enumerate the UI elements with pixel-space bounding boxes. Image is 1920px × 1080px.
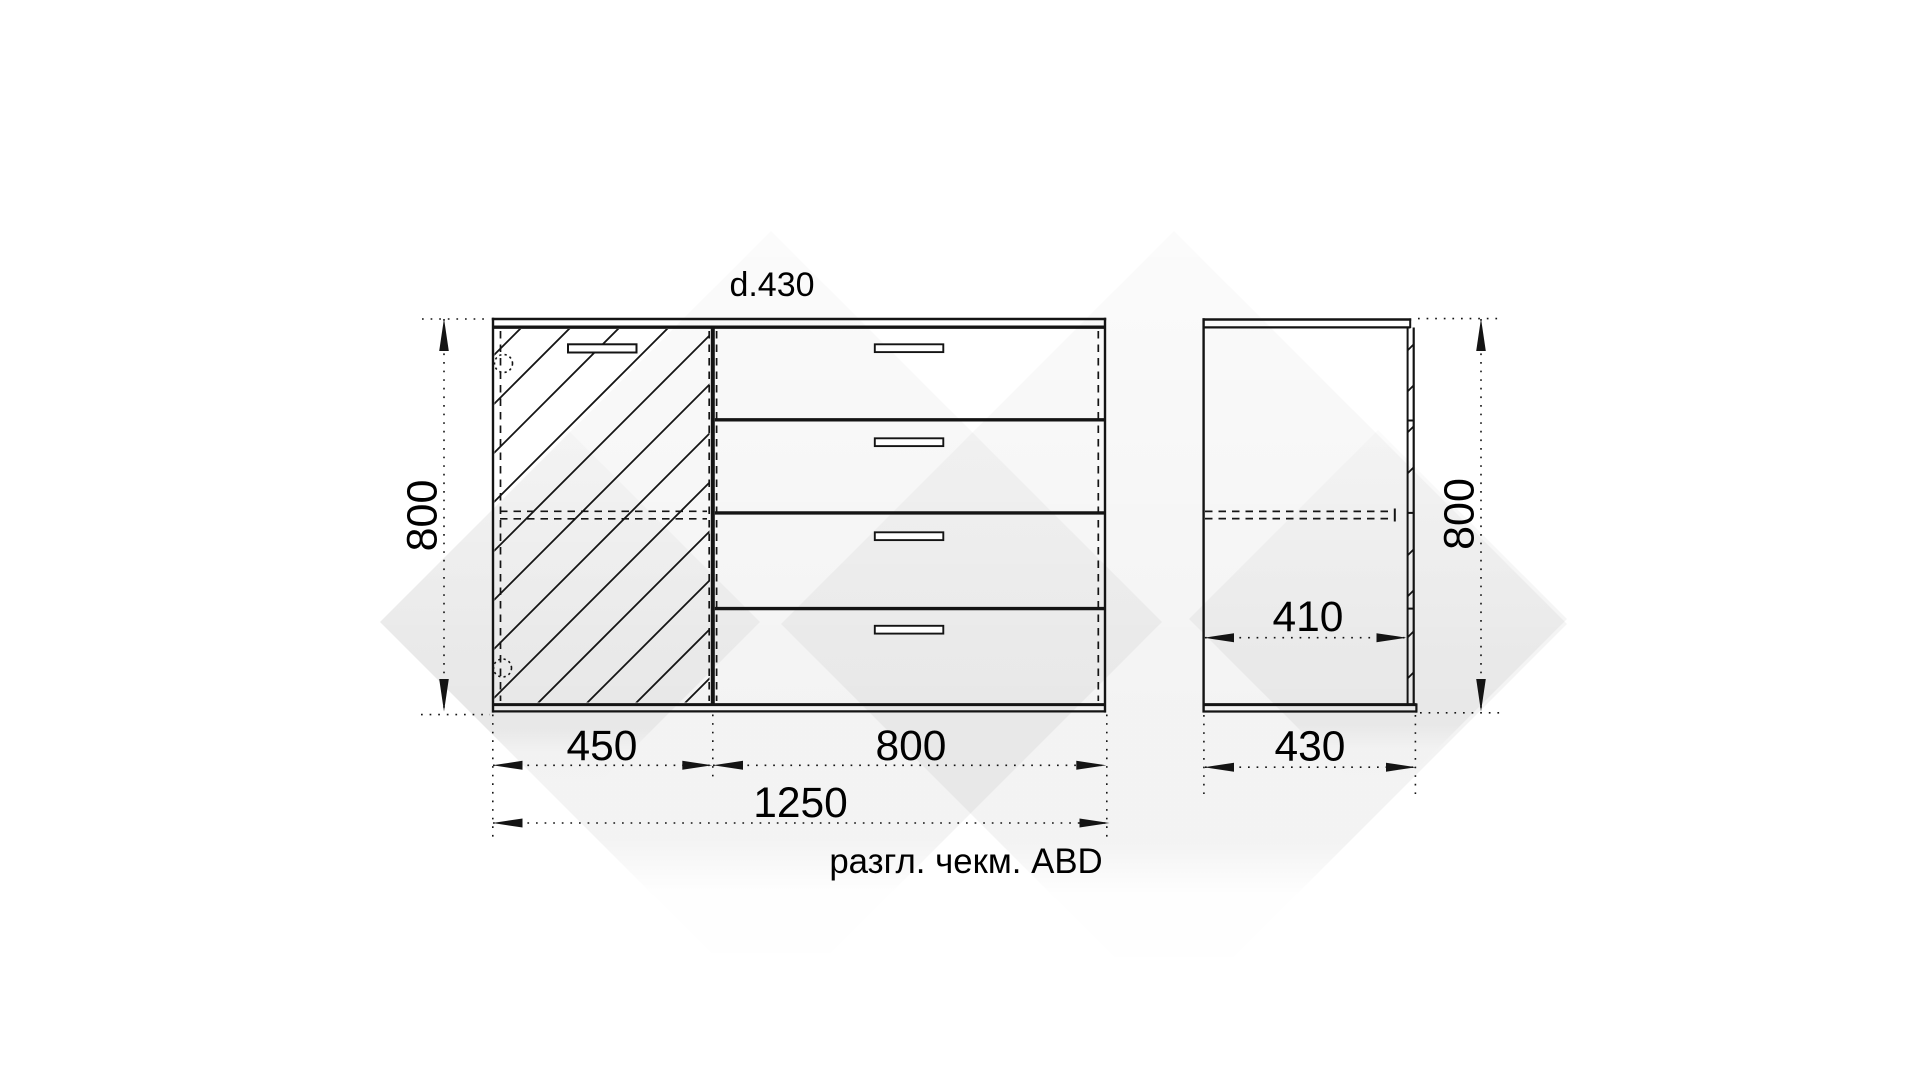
svg-text:разгл. чекм. ABD: разгл. чекм. ABD — [829, 842, 1102, 881]
svg-text:1250: 1250 — [753, 780, 848, 827]
svg-text:800: 800 — [1436, 478, 1484, 550]
svg-text:d.430: d.430 — [729, 266, 814, 304]
svg-text:450: 450 — [567, 723, 638, 770]
svg-text:410: 410 — [1273, 594, 1344, 641]
svg-text:430: 430 — [1275, 724, 1346, 771]
svg-text:800: 800 — [399, 480, 447, 552]
svg-text:800: 800 — [876, 723, 947, 770]
